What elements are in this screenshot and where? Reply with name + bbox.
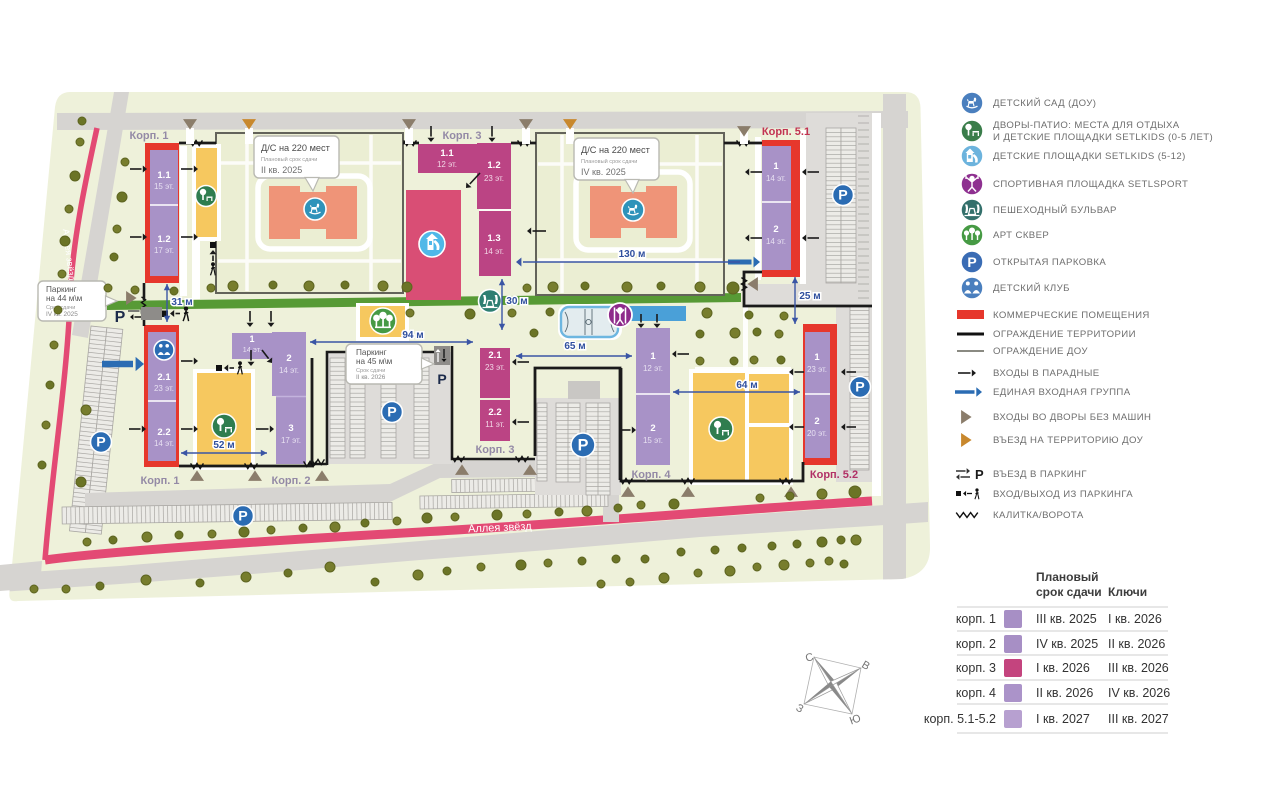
svg-text:65 м: 65 м (564, 341, 585, 352)
svg-text:14 эт.: 14 эт. (766, 237, 786, 246)
svg-text:2: 2 (286, 353, 291, 364)
svg-text:23 эт.: 23 эт. (485, 363, 505, 372)
svg-text:ПЕШЕХОДНЫЙ БУЛЬВАР: ПЕШЕХОДНЫЙ БУЛЬВАР (993, 204, 1117, 216)
svg-text:III кв. 2027: III кв. 2027 (1108, 712, 1169, 726)
svg-text:2: 2 (773, 224, 778, 235)
svg-text:ВХОДЫ ВО ДВОРЫ БЕЗ МАШИН: ВХОДЫ ВО ДВОРЫ БЕЗ МАШИН (993, 412, 1151, 423)
svg-text:ДЕТСКИЙ КЛУБ: ДЕТСКИЙ КЛУБ (993, 282, 1070, 294)
svg-text:15 эт.: 15 эт. (643, 436, 663, 445)
svg-text:И ДЕТСКИЕ ПЛОЩАДКИ SETLKIDS (0: И ДЕТСКИЕ ПЛОЩАДКИ SETLKIDS (0-5 ЛЕТ) (993, 132, 1213, 143)
svg-text:на 44 м\м: на 44 м\м (46, 294, 83, 303)
svg-text:II кв. 2026: II кв. 2026 (356, 374, 386, 381)
svg-text:14 эт.: 14 эт. (243, 345, 262, 354)
svg-text:23 эт.: 23 эт. (154, 384, 174, 393)
svg-text:64 м: 64 м (736, 380, 757, 391)
svg-text:Корп. 4: Корп. 4 (631, 469, 671, 481)
svg-text:23 эт.: 23 эт. (807, 365, 827, 374)
svg-text:Корп. 3: Корп. 3 (475, 444, 514, 456)
svg-text:1.2: 1.2 (487, 160, 500, 171)
svg-text:P: P (855, 380, 864, 396)
svg-text:2.2: 2.2 (488, 407, 501, 418)
svg-text:2: 2 (814, 416, 819, 427)
svg-text:30 м: 30 м (506, 296, 527, 307)
svg-text:IV кв. 2025: IV кв. 2025 (581, 167, 626, 177)
svg-text:31 м: 31 м (171, 297, 192, 308)
svg-text:КОММЕРЧЕСКИЕ ПОМЕЩЕНИЯ: КОММЕРЧЕСКИЕ ПОМЕЩЕНИЯ (993, 310, 1150, 321)
svg-text:корп. 1: корп. 1 (956, 612, 996, 626)
svg-text:14 эт.: 14 эт. (484, 247, 504, 256)
svg-text:P: P (967, 254, 976, 270)
svg-text:ДЕТСКИЙ САД (ДОУ): ДЕТСКИЙ САД (ДОУ) (993, 97, 1096, 109)
svg-text:12 эт.: 12 эт. (437, 160, 457, 169)
svg-text:ЕДИНАЯ ВХОДНАЯ ГРУППА: ЕДИНАЯ ВХОДНАЯ ГРУППА (993, 387, 1131, 398)
svg-text:ОГРАЖДЕНИЕ ТЕРРИТОРИИ: ОГРАЖДЕНИЕ ТЕРРИТОРИИ (993, 329, 1136, 340)
svg-text:11 эт.: 11 эт. (485, 420, 504, 429)
svg-text:Плановый: Плановый (1036, 570, 1099, 584)
svg-text:Корп. 5.2: Корп. 5.2 (810, 469, 858, 481)
svg-text:P: P (238, 509, 247, 525)
svg-text:ОГРАЖДЕНИЕ ДОУ: ОГРАЖДЕНИЕ ДОУ (993, 346, 1088, 357)
svg-text:Паркинг: Паркинг (46, 285, 77, 294)
svg-text:ДВОРЫ-ПАТИО: МЕСТА ДЛЯ ОТДЫХА: ДВОРЫ-ПАТИО: МЕСТА ДЛЯ ОТДЫХА (993, 120, 1180, 131)
svg-text:IV кв. 2025: IV кв. 2025 (1036, 637, 1098, 651)
svg-text:14 эт.: 14 эт. (279, 366, 299, 375)
svg-text:Плановый срок сдачи: Плановый срок сдачи (261, 156, 317, 163)
svg-text:P: P (115, 309, 126, 326)
svg-text:на 45 м\м: на 45 м\м (356, 357, 393, 366)
svg-text:130 м: 130 м (619, 249, 646, 260)
svg-text:корп. 3: корп. 3 (956, 661, 996, 675)
svg-text:АРТ СКВЕР: АРТ СКВЕР (993, 230, 1049, 241)
svg-text:1: 1 (249, 334, 254, 344)
svg-text:I кв. 2026: I кв. 2026 (1108, 612, 1162, 626)
svg-text:Корп. 3: Корп. 3 (442, 130, 481, 142)
svg-text:17 эт.: 17 эт. (281, 436, 301, 445)
svg-text:Корп. 5.1: Корп. 5.1 (762, 126, 810, 138)
svg-text:P: P (387, 405, 396, 421)
svg-text:корп. 5.1-5.2: корп. 5.1-5.2 (924, 712, 996, 726)
svg-text:Плановый срок сдачи: Плановый срок сдачи (581, 158, 637, 165)
svg-text:14 эт.: 14 эт. (766, 174, 786, 183)
svg-text:P: P (96, 435, 105, 451)
svg-text:СПОРТИВНАЯ ПЛОЩАДКА SETLSPORT: СПОРТИВНАЯ ПЛОЩАДКА SETLSPORT (993, 179, 1188, 190)
svg-text:2.1: 2.1 (488, 350, 502, 361)
svg-text:Ключи: Ключи (1108, 585, 1147, 599)
svg-text:ВХОД/ВЫХОД ИЗ ПАРКИНГА: ВХОД/ВЫХОД ИЗ ПАРКИНГА (993, 489, 1133, 500)
svg-text:1.1: 1.1 (157, 170, 171, 181)
svg-text:Корп. 2: Корп. 2 (271, 475, 310, 487)
svg-text:III кв. 2026: III кв. 2026 (1108, 661, 1169, 675)
svg-text:корп. 2: корп. 2 (956, 637, 996, 651)
svg-text:1: 1 (814, 352, 820, 363)
svg-text:17 эт.: 17 эт. (154, 246, 174, 255)
svg-text:I кв. 2027: I кв. 2027 (1036, 712, 1090, 726)
svg-text:2.1: 2.1 (157, 372, 171, 383)
svg-text:2: 2 (650, 423, 655, 434)
svg-text:1.1: 1.1 (440, 148, 454, 159)
svg-text:корп. 4: корп. 4 (956, 686, 996, 700)
svg-text:1: 1 (773, 161, 779, 172)
svg-text:ВЪЕЗД В ПАРКИНГ: ВЪЕЗД В ПАРКИНГ (993, 469, 1087, 480)
svg-text:срок сдачи: срок сдачи (1036, 585, 1102, 599)
svg-text:14 эт.: 14 эт. (154, 439, 174, 448)
svg-text:15 эт.: 15 эт. (154, 182, 174, 191)
svg-text:1.2: 1.2 (157, 234, 170, 245)
svg-text:ВХОДЫ В ПАРАДНЫЕ: ВХОДЫ В ПАРАДНЫЕ (993, 368, 1100, 379)
svg-text:94 м: 94 м (402, 330, 423, 341)
svg-text:1: 1 (650, 351, 656, 362)
svg-text:Д/С на 220 мест: Д/С на 220 мест (261, 143, 331, 153)
svg-text:1.3: 1.3 (487, 233, 500, 244)
svg-text:12 эт.: 12 эт. (643, 364, 663, 373)
svg-text:Корп. 1: Корп. 1 (140, 475, 179, 487)
svg-text:IV кв. 2026: IV кв. 2026 (1108, 686, 1170, 700)
svg-text:23 эт.: 23 эт. (484, 174, 504, 183)
svg-text:P: P (578, 436, 589, 454)
svg-text:IV кв. 2025: IV кв. 2025 (46, 311, 78, 318)
svg-text:P: P (437, 371, 446, 387)
svg-text:25 м: 25 м (799, 291, 820, 302)
svg-text:2.2: 2.2 (157, 427, 170, 438)
svg-text:I кв. 2026: I кв. 2026 (1036, 661, 1090, 675)
svg-text:ДЕТСКИЕ ПЛОЩАДКИ SETLKIDS (5-1: ДЕТСКИЕ ПЛОЩАДКИ SETLKIDS (5-12) (993, 151, 1186, 162)
svg-text:Д/С на 220 мест: Д/С на 220 мест (581, 145, 651, 155)
svg-text:3: 3 (288, 423, 293, 434)
svg-text:ОТКРЫТАЯ ПАРКОВКА: ОТКРЫТАЯ ПАРКОВКА (993, 257, 1106, 268)
svg-text:Корп. 1: Корп. 1 (129, 130, 168, 142)
svg-text:P: P (975, 467, 984, 482)
svg-text:II кв. 2026: II кв. 2026 (1108, 637, 1165, 651)
svg-text:ВЪЕЗД НА ТЕРРИТОРИЮ ДОУ: ВЪЕЗД НА ТЕРРИТОРИЮ ДОУ (993, 435, 1144, 446)
svg-text:Паркинг: Паркинг (356, 348, 387, 357)
svg-text:20 эт.: 20 эт. (807, 429, 827, 438)
svg-text:КАЛИТКА/ВОРОТА: КАЛИТКА/ВОРОТА (993, 510, 1084, 521)
svg-text:II кв. 2025: II кв. 2025 (261, 165, 302, 175)
svg-text:52 м: 52 м (213, 440, 234, 451)
svg-text:III кв. 2025: III кв. 2025 (1036, 612, 1097, 626)
svg-text:P: P (838, 188, 847, 204)
svg-text:II кв. 2026: II кв. 2026 (1036, 686, 1093, 700)
